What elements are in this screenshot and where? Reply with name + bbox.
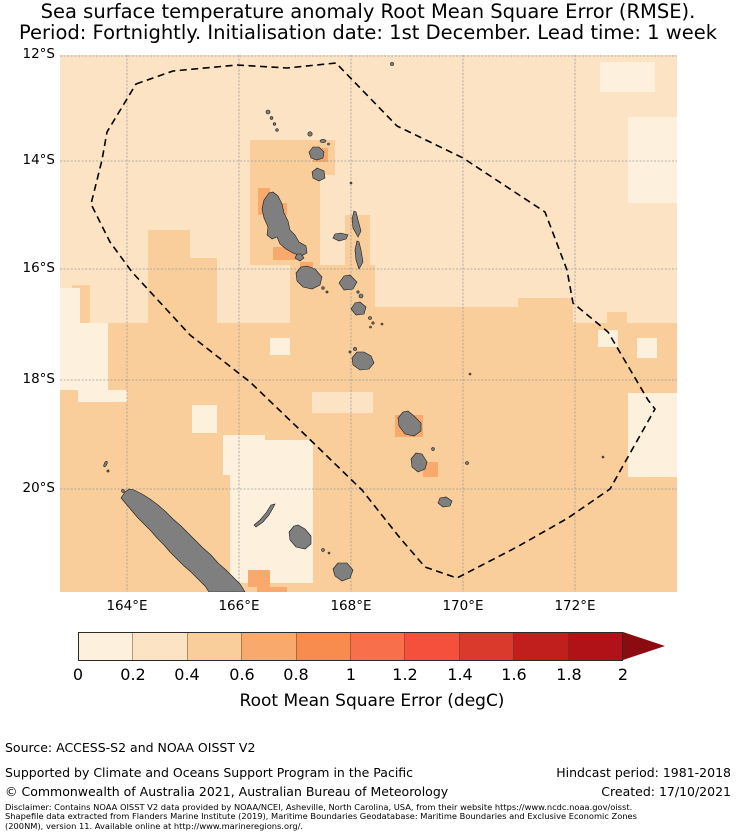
colorbar-segment-06-08: [241, 633, 295, 660]
source-text: Source: ACCESS-S2 and NOAA OISST V2: [5, 740, 255, 755]
rmse-heatmap-svg: [60, 55, 677, 592]
colorbar-segment-14-16: [459, 633, 513, 660]
disclaimer-line-3: (200NM), version 11. Available online at…: [5, 822, 637, 831]
colorbar-segment-10-12: [350, 633, 404, 660]
rmse-patch-02-04: [312, 392, 373, 413]
colorbar-tick-2: 2: [601, 666, 645, 684]
x-tick-172e: 172°E: [540, 598, 610, 614]
mota-lava-island: [320, 139, 326, 142]
ureparapara-island: [308, 132, 312, 136]
torres-islands: [266, 110, 270, 114]
colorbar-label: Root Mean Square Error (degC): [78, 691, 666, 711]
colorbar-tick-14: 1.4: [438, 666, 482, 684]
figure-title-line-2: Period: Fortnightly. Initialisation date…: [19, 22, 717, 43]
colorbar-segment-12-14: [404, 633, 458, 660]
colorbar-segment-04-06: [187, 633, 241, 660]
x-tick-170e: 170°E: [428, 598, 498, 614]
colorbar-tick-1: 1: [329, 666, 373, 684]
colorbar-tick-06: 0.6: [220, 666, 264, 684]
supported-by-text: Supported by Climate and Oceans Support …: [5, 765, 413, 780]
colorbar-segment-02-04: [132, 633, 186, 660]
copyright-text: © Commonwealth of Australia 2021, Austra…: [5, 784, 448, 799]
colorbar-tick-16: 1.6: [492, 666, 536, 684]
figure-canvas: Sea surface temperature anomaly Root Mea…: [0, 0, 736, 839]
y-tick-14s: 14°S: [0, 152, 58, 168]
colorbar-tick-18: 1.8: [547, 666, 591, 684]
map-plot-area: [60, 55, 677, 592]
colorbar-segment-0-02: [79, 633, 132, 660]
futuna-island: [466, 462, 469, 465]
colorbar-tick-08: 0.8: [274, 666, 318, 684]
shepherd-islands: [369, 317, 372, 320]
colorbar-tick-04: 0.4: [165, 666, 209, 684]
y-tick-12s: 12°S: [0, 46, 58, 62]
matthew-island: [602, 456, 604, 458]
colorbar-tick-12: 1.2: [383, 666, 427, 684]
y-tick-18s: 18°S: [0, 371, 58, 387]
paama-island: [357, 291, 359, 293]
colorbar-tick-02: 0.2: [111, 666, 155, 684]
colorbar: [78, 632, 623, 661]
colorbar-segment-08-10: [296, 633, 350, 660]
y-tick-16s: 16°S: [0, 260, 58, 276]
hindcast-period-text: Hindcast period: 1981-2018: [556, 765, 731, 780]
colorbar-tick-0: 0: [56, 666, 100, 684]
y-tick-20s: 20°S: [0, 480, 58, 496]
disclaimer-text: Disclaimer: Contains NOAA OISST V2 data …: [5, 803, 637, 831]
colorbar-extend-arrow: [623, 632, 665, 660]
islet: [390, 62, 393, 65]
colorbar-segment-18-20: [568, 633, 622, 660]
x-tick-168e: 168°E: [316, 598, 386, 614]
x-tick-166e: 166°E: [204, 598, 274, 614]
figure-title-line-1: Sea surface temperature anomaly Root Mea…: [41, 1, 696, 22]
lopevi-island: [359, 294, 363, 298]
x-tick-164e: 164°E: [92, 598, 162, 614]
aniwa-island: [432, 448, 435, 451]
colorbar-segment-16-18: [513, 633, 567, 660]
created-date-text: Created: 17/10/2021: [601, 784, 731, 799]
